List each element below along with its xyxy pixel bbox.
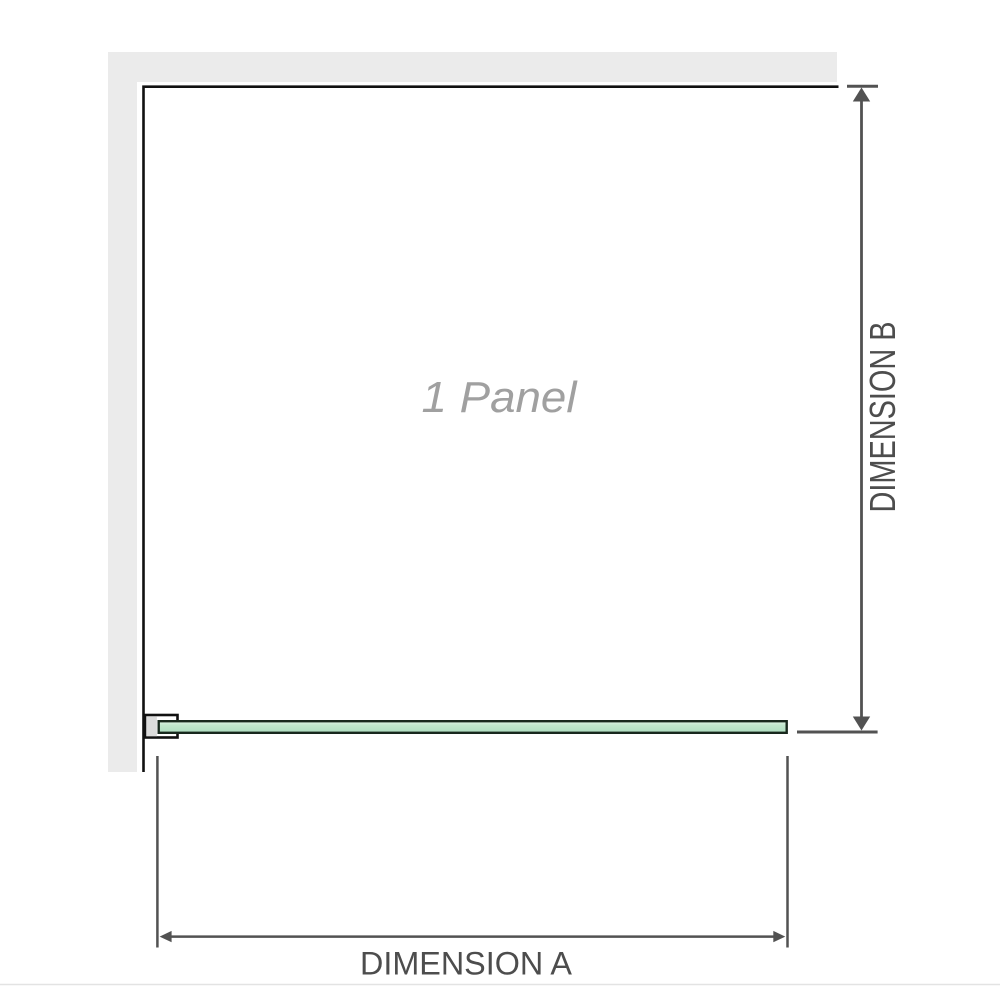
svg-text:DIMENSION B: DIMENSION B [862,322,903,513]
svg-text:DIMENSION A: DIMENSION A [360,946,573,982]
svg-text:1 Panel: 1 Panel [422,373,578,422]
